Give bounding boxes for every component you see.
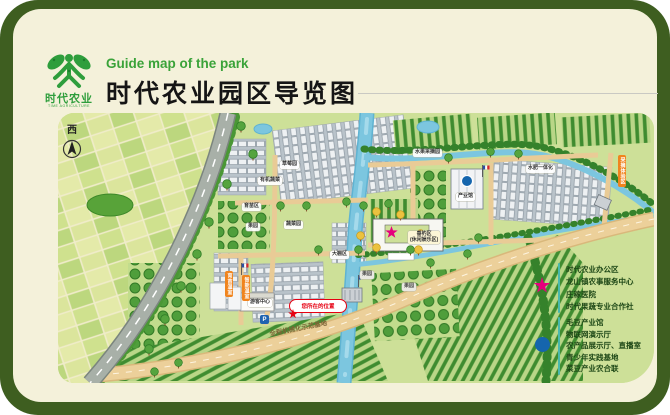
logo-emblem-icon [42,51,96,89]
map-tag: 蔬菜园 [284,221,303,229]
page-title: 时代农业园区导览图 [106,74,358,110]
legend-divider [558,317,560,375]
poster-frame: 时代农业 TIME AGRICULTURE Guide map of the p… [0,0,670,415]
map-tag: 产业馆 [456,193,475,201]
map-tag: 智能温室 [242,275,250,301]
map-tag: 果园 [360,271,374,279]
map-panel: 西 全程机械化示范基地 草莓园有机蔬菜育苗区蔬菜园果园大棚区垂钓区 (休闲娱乐区… [58,113,654,383]
legend-item: 庄稼医院 [566,289,634,301]
legend-item: 物联网演示厅 [566,329,641,341]
legend-item: 时代果蔬专业合作社 [566,301,634,313]
legend-item: 菜豆产业农合联 [566,363,641,375]
legend-item: 龙山镇农事服务中心 [566,276,634,288]
legend-item: 青少年实践基地 [566,352,641,364]
map-tag: 育苗温室 [225,271,233,297]
map-tag: 垂钓区 (休闲娱乐区) [408,231,440,244]
map-tag: 草莓园 [280,161,299,169]
map-tag: 水肥一体化 [526,165,555,173]
logo-name-cn: 时代农业 [39,94,99,104]
parking-icon: P [260,315,269,324]
legend-item: 时代农业办公区 [566,264,634,276]
map-tag: 采摘体验区 [618,155,626,187]
legend-dot-group: 毛豆产业馆物联网演示厅农产品展示厅、直播室青少年实践基地菜豆产业农合联 [532,317,641,375]
legend-item: 毛豆产业馆 [566,317,641,329]
map-tag: 游客中心 [248,299,272,307]
map-tag: 大棚区 [330,251,349,259]
map-tag: 水果采摘园 [413,149,442,157]
map-tag: 有机蔬菜 [258,177,282,185]
you-are-here-label: 您所在的位置 [289,299,347,313]
header-rule [358,93,658,94]
poster-card: 时代农业 TIME AGRICULTURE Guide map of the p… [13,9,657,402]
dot-legend-icon [535,337,550,352]
legend-star-group: 时代农业办公区龙山镇农事服务中心庄稼医院时代果蔬专业合作社 [532,263,634,313]
map-tag: 育苗区 [242,203,261,211]
logo: 时代农业 TIME AGRICULTURE [39,51,99,111]
star-legend-icon [534,277,551,294]
subtitle-en: Guide map of the park [106,56,358,71]
legend-divider [558,263,560,313]
map-tag: 果园 [246,223,260,231]
legend-item: 农产品展示厅、直播室 [566,340,641,352]
map-tag: 果园 [402,283,416,291]
